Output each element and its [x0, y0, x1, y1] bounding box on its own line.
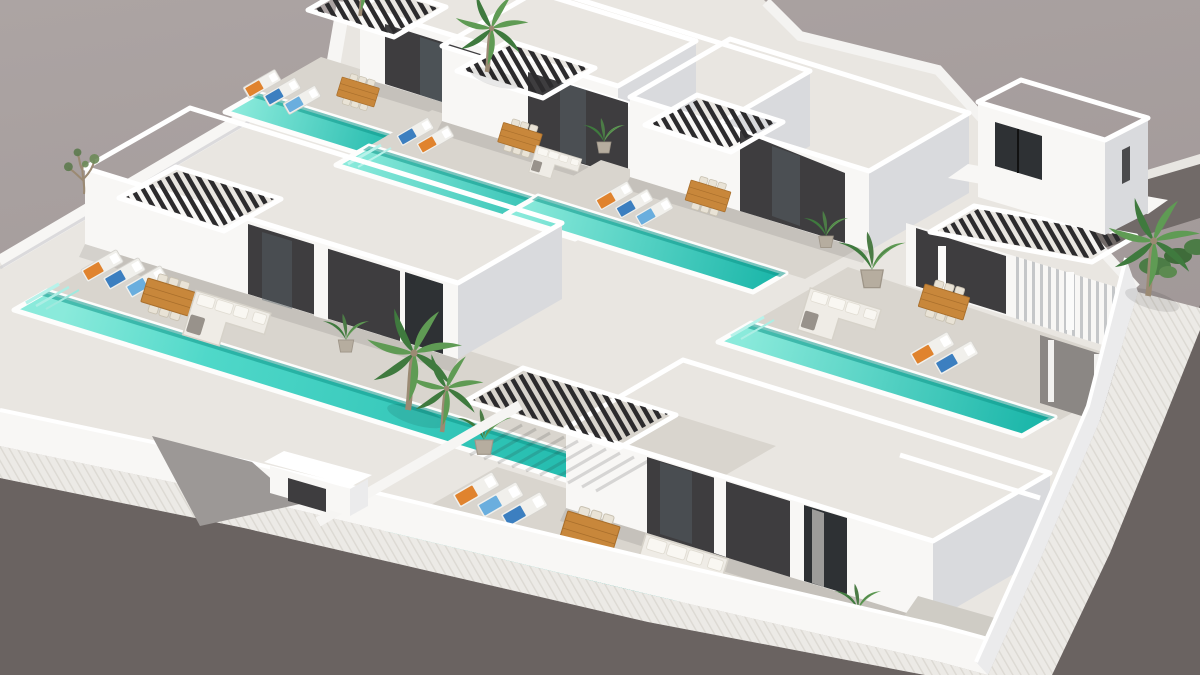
glass-reflection [560, 82, 586, 164]
glass-reflection [660, 462, 692, 544]
carport-column [1048, 340, 1054, 402]
side-window-slit [1122, 146, 1130, 184]
porch-column [314, 242, 328, 320]
curtain [812, 509, 824, 587]
villa-development-render: Aerial 3D architectural rendering of a m… [0, 0, 1200, 675]
glass-reflection [772, 146, 800, 226]
glass-door [804, 505, 847, 594]
render-canvas: Aerial 3D architectural rendering of a m… [0, 0, 1200, 675]
glass-reflection [262, 232, 292, 309]
pergola-column [1066, 272, 1074, 330]
porch-column [714, 477, 726, 557]
